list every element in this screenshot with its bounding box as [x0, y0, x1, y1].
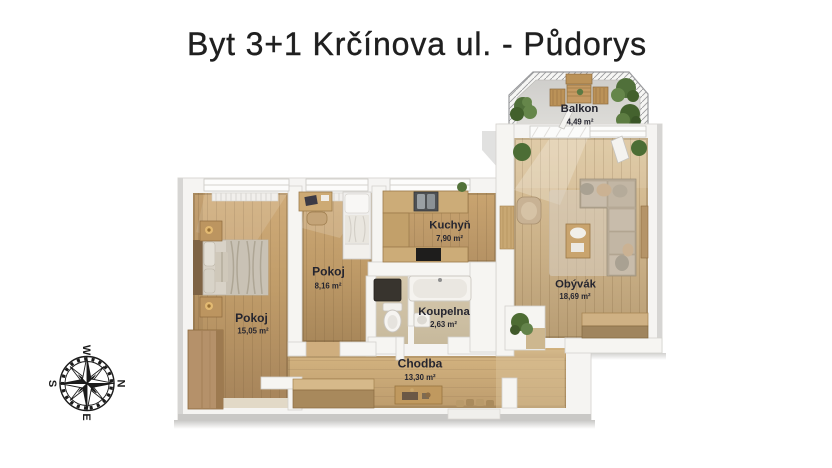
- svg-text:15,05 m²: 15,05 m²: [237, 327, 269, 336]
- svg-text:Obývák: Obývák: [555, 279, 597, 291]
- svg-text:S: S: [46, 380, 58, 387]
- svg-text:Byt 3+1 Krčínova ul. - Půdorys: Byt 3+1 Krčínova ul. - Půdorys: [187, 26, 647, 62]
- svg-text:Koupelna: Koupelna: [418, 306, 470, 318]
- svg-text:Pokoj: Pokoj: [235, 311, 268, 325]
- svg-text:7,90 m²: 7,90 m²: [436, 234, 463, 243]
- svg-text:Balkon: Balkon: [561, 103, 599, 115]
- svg-text:E: E: [80, 413, 92, 420]
- svg-text:W: W: [80, 345, 92, 356]
- svg-text:13,30 m²: 13,30 m²: [404, 373, 436, 382]
- svg-text:Chodba: Chodba: [398, 357, 443, 371]
- svg-text:4,49 m²: 4,49 m²: [567, 118, 594, 127]
- svg-text:18,69 m²: 18,69 m²: [559, 292, 591, 301]
- svg-text:Pokoj: Pokoj: [312, 265, 345, 279]
- svg-text:2,63 m²: 2,63 m²: [430, 320, 457, 329]
- svg-text:N: N: [115, 380, 127, 388]
- svg-text:8,16 m²: 8,16 m²: [315, 282, 342, 291]
- svg-text:Kuchyň: Kuchyň: [429, 220, 471, 232]
